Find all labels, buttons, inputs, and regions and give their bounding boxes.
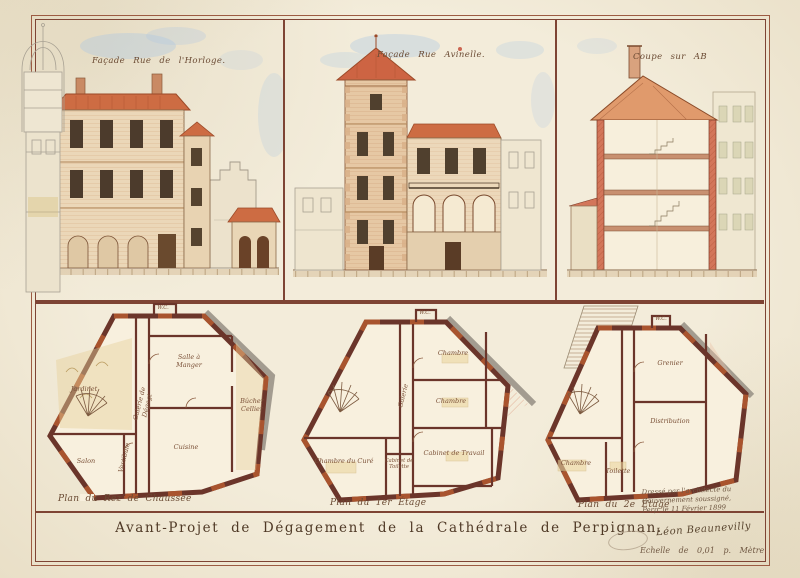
plan-etage1: W.C. Chambre Chambre Cabinet de Travail … [296,302,540,511]
panel-label-coupe-ab: Coupe sur AB [633,52,707,62]
room-label-cuisine: Cuisine [164,444,208,452]
section-ab-drawing [557,20,764,300]
building-section [591,46,717,270]
right-tower [180,122,214,268]
room-label-chambre: Chambre [552,460,600,468]
adjacent-facade [713,92,755,270]
room-label-bucher-cellier: Bûcher Cellier [230,398,274,414]
architect-signature: Léon Beaunevilly [656,521,752,539]
plan-etage2-drawing [540,302,768,511]
room-label-cabinet-travail: Cabinet de Travail [422,450,486,458]
room-label-jardinet: Jardinet [62,386,106,394]
plan-caption-rdc: Plan du Rez de Chaussée [58,494,192,504]
cathedral-tower-sketch [8,12,78,304]
room-label-wc: W.C. [646,316,676,322]
left-pencil-building [295,188,343,270]
right-house [228,208,280,268]
plan-rdc: W.C. Jardinet Salle à Manger Bûcher Cell… [36,302,296,511]
plan-caption-etage1: Plan du 1er Étage [330,498,426,508]
ground-line [293,270,547,277]
ground-line [567,270,757,277]
right-pencil-building [501,140,541,270]
room-label-toilette: Toilette [598,468,638,476]
room-label-chambre-2: Chambre [426,398,476,406]
panel-label-facade-horloge: Façade Rue de l'Horloge. [92,56,225,66]
room-label-chambre-1: Chambre [428,350,478,358]
room-label-cabinet-toilette: Cabinet de Toilette [384,458,414,470]
room-label-wc: W.C. [410,310,440,316]
room-label-distribution: Distribution [638,418,702,426]
room-label-wc: W.C. [148,305,178,311]
window-gap [229,372,236,386]
inscription-block: Dressé par l'architecte du Gouvernement … [642,484,773,516]
room-label-chambre-cure: Chambre du Curé [312,458,376,466]
red-mark [458,47,462,51]
sky-wash [577,38,617,54]
ground-line [44,268,279,275]
scale-note: Echelle de 0,01 p. Mètre [640,546,764,555]
sheet-title: Avant-Projet de Dégagement de la Cathédr… [115,520,663,536]
room-label-salle-a-manger: Salle à Manger [166,354,212,370]
elevation-avinelle-drawing [285,20,555,300]
room-label-salon: Salon [66,458,106,466]
right-wing [407,124,501,270]
plan-etage1-drawing [296,302,540,511]
architectural-drawing-sheet: Façade Rue de l'Horloge. Façade Rue Avin… [0,0,800,578]
plan-etage2: W.C. Grenier Distribution Chambre Toilet… [540,302,768,511]
corner-tower [337,34,415,270]
panel-label-facade-avinelle: Façade Rue Avinelle. [377,50,485,60]
left-annex-section [569,198,597,270]
garden-wash [56,338,132,430]
room-label-grenier: Grenier [642,360,698,368]
